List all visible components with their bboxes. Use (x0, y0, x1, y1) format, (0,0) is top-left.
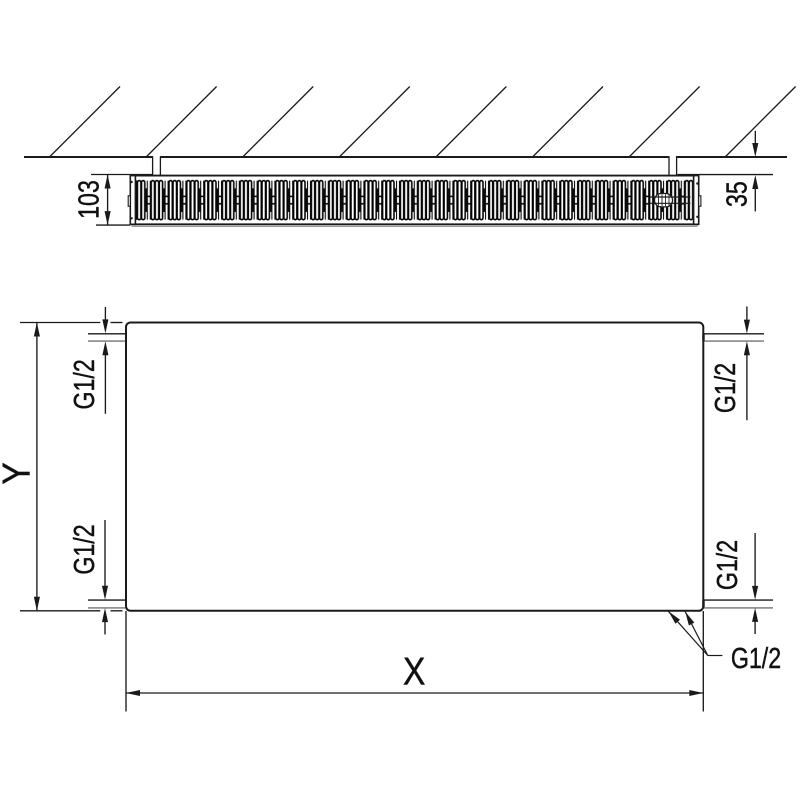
svg-text:Y: Y (0, 462, 38, 484)
svg-text:35: 35 (720, 181, 753, 207)
svg-text:G1/2: G1/2 (67, 524, 100, 574)
svg-text:103: 103 (72, 180, 105, 219)
svg-text:G1/2: G1/2 (708, 363, 741, 413)
svg-text:G1/2: G1/2 (711, 540, 744, 590)
svg-text:G1/2: G1/2 (731, 642, 781, 675)
svg-text:X: X (403, 649, 425, 693)
svg-text:G1/2: G1/2 (67, 359, 100, 409)
